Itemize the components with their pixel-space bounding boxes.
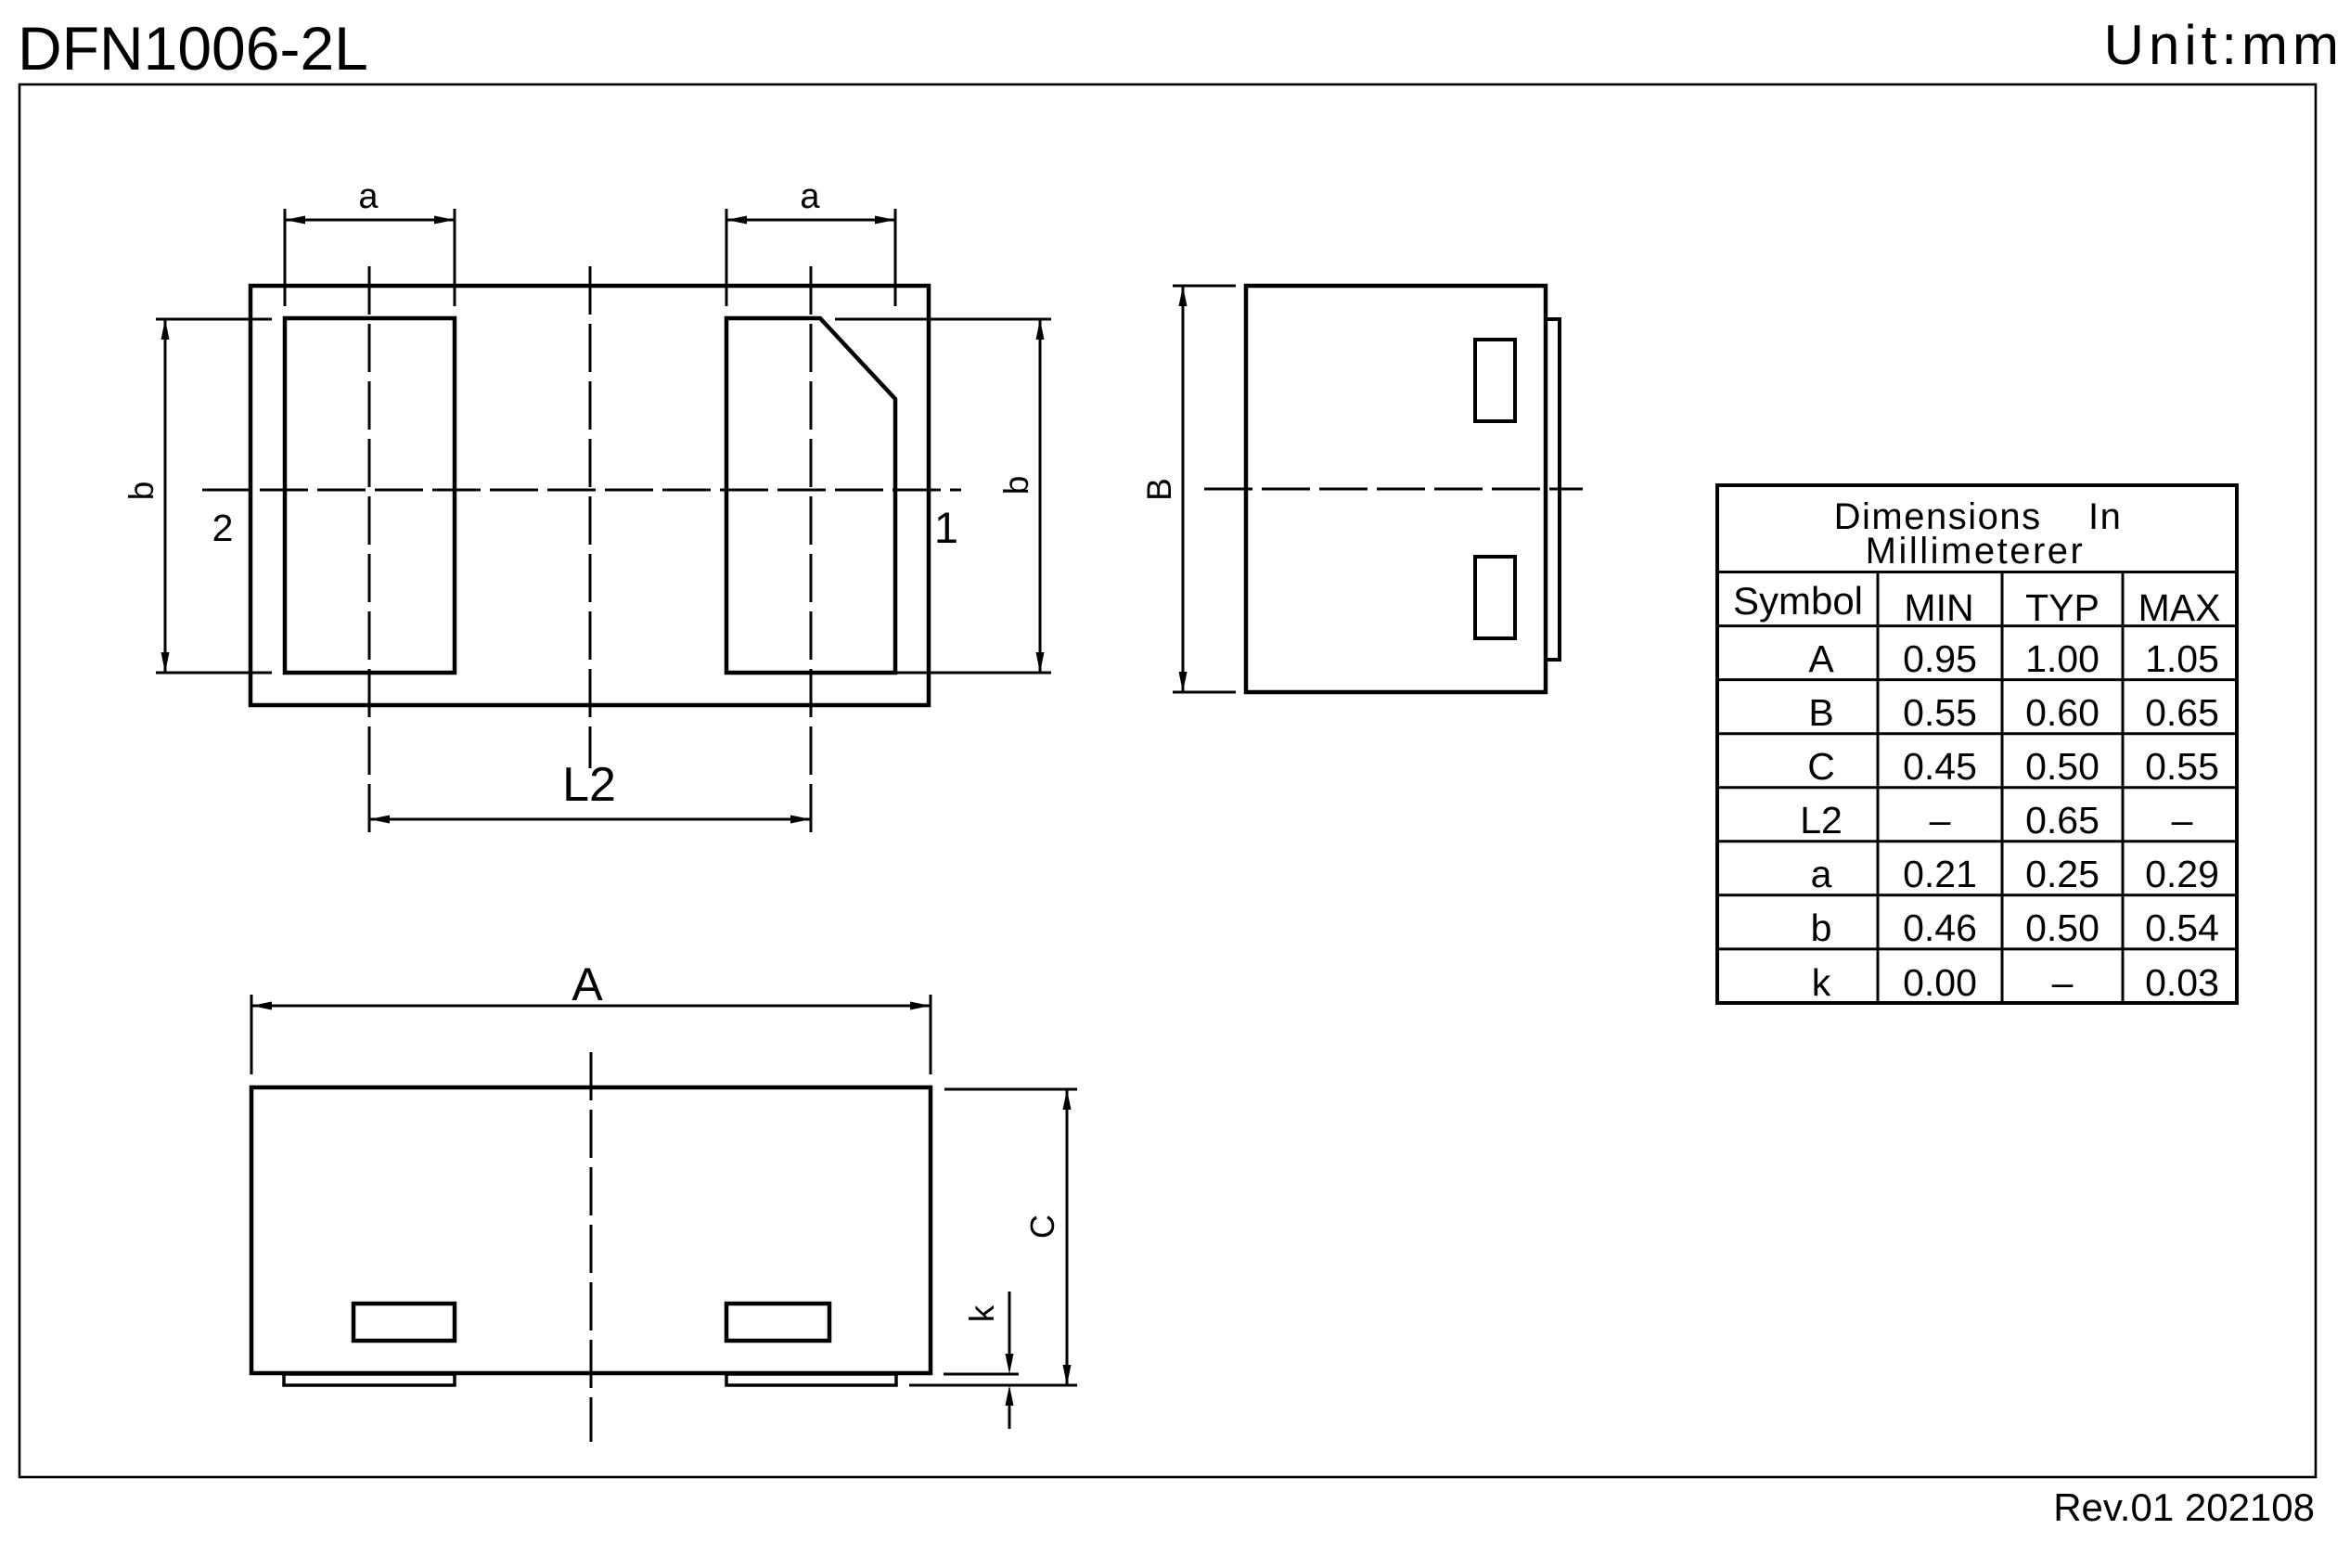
svg-text:a: a <box>800 177 820 216</box>
svg-text:–: – <box>1930 799 1951 842</box>
svg-text:k: k <box>963 1305 1001 1322</box>
svg-text:0.60: 0.60 <box>2025 691 2100 734</box>
svg-text:0.21: 0.21 <box>1903 853 1977 895</box>
svg-text:C: C <box>1807 745 1835 788</box>
svg-text:a: a <box>1811 853 1832 895</box>
svg-text:Symbol: Symbol <box>1733 579 1863 623</box>
svg-text:–: – <box>2052 961 2074 1004</box>
svg-text:2: 2 <box>212 507 234 549</box>
svg-text:L2: L2 <box>562 758 616 812</box>
svg-text:Rev.01 202108: Rev.01 202108 <box>2053 1485 2315 1529</box>
svg-text:b: b <box>122 482 161 501</box>
svg-text:DFN1006-2L: DFN1006-2L <box>18 14 368 83</box>
svg-text:Millimeterer: Millimeterer <box>1866 531 2086 572</box>
svg-text:0.00: 0.00 <box>1903 961 1977 1004</box>
svg-text:0.50: 0.50 <box>2025 906 2100 949</box>
svg-text:1.00: 1.00 <box>2025 637 2100 680</box>
svg-text:0.46: 0.46 <box>1903 906 1977 949</box>
svg-text:0.29: 0.29 <box>2145 853 2219 895</box>
svg-text:b: b <box>997 476 1035 495</box>
svg-text:–: – <box>2172 799 2193 842</box>
svg-text:0.45: 0.45 <box>1903 745 1977 788</box>
svg-text:TYP: TYP <box>2025 586 2100 629</box>
svg-text:MIN: MIN <box>1904 586 1973 629</box>
svg-text:b: b <box>1811 906 1832 949</box>
svg-text:1.05: 1.05 <box>2145 637 2219 680</box>
svg-text:a: a <box>358 177 379 216</box>
svg-text:Unit:mm: Unit:mm <box>2104 14 2344 76</box>
svg-text:C: C <box>1023 1215 1061 1239</box>
svg-text:B: B <box>1140 478 1178 501</box>
svg-text:0.55: 0.55 <box>2145 745 2219 788</box>
svg-text:MAX: MAX <box>2138 586 2221 629</box>
svg-text:0.54: 0.54 <box>2145 906 2219 949</box>
svg-text:A: A <box>1808 637 1834 680</box>
svg-text:0.25: 0.25 <box>2025 853 2100 895</box>
svg-text:A: A <box>571 958 603 1010</box>
svg-text:0.50: 0.50 <box>2025 745 2100 788</box>
svg-text:0.55: 0.55 <box>1903 691 1977 734</box>
svg-text:0.03: 0.03 <box>2145 961 2219 1004</box>
svg-text:0.65: 0.65 <box>2025 799 2100 842</box>
svg-text:k: k <box>1812 961 1831 1004</box>
svg-text:0.95: 0.95 <box>1903 637 1977 680</box>
svg-text:1: 1 <box>934 503 958 552</box>
svg-text:B: B <box>1808 691 1833 734</box>
svg-text:L2: L2 <box>1800 799 1843 842</box>
svg-text:0.65: 0.65 <box>2145 691 2219 734</box>
